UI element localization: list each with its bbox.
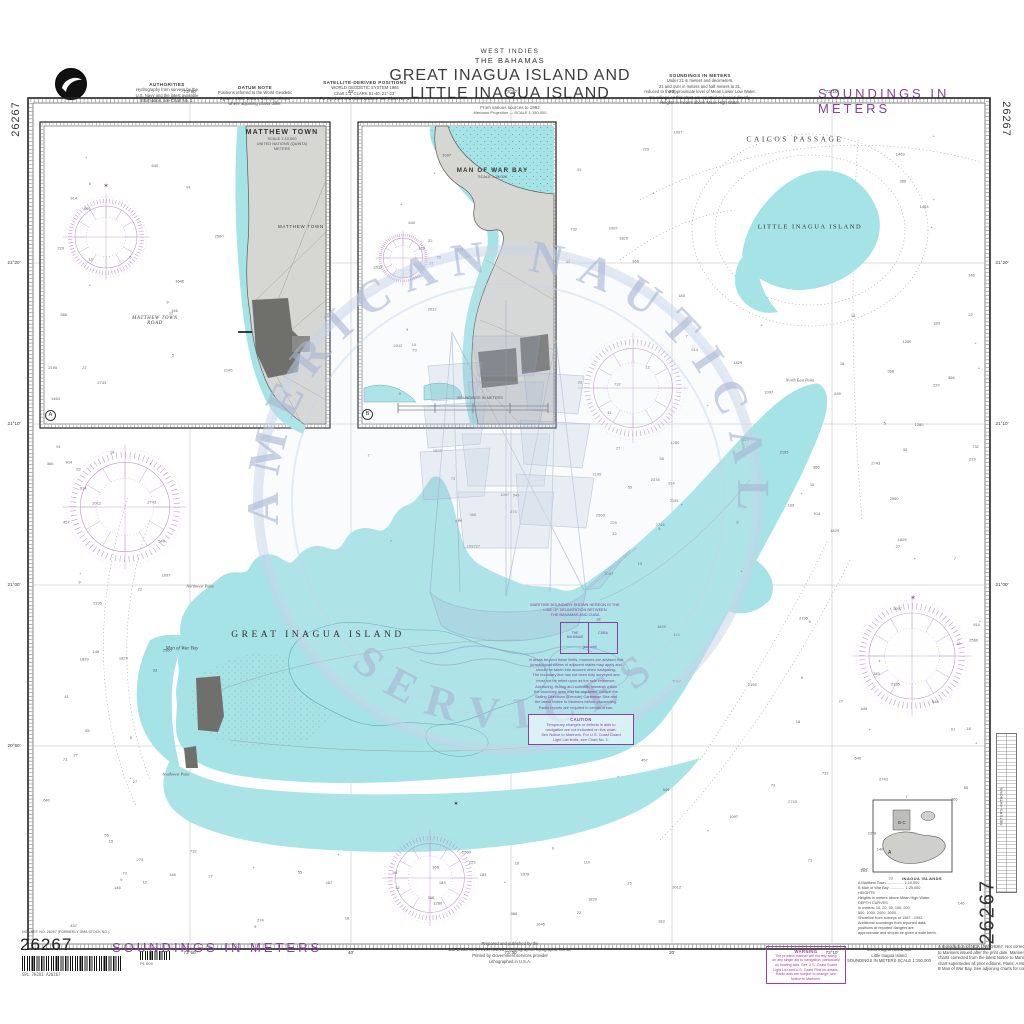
- boundary-label-left: THE BAHAMAS: [563, 631, 587, 639]
- graticule-label: 21°20': [996, 260, 1009, 265]
- sounding: +: [974, 340, 977, 345]
- sounding: 7: [905, 794, 908, 799]
- sounding: 366: [948, 375, 955, 380]
- inset-a-title-block: MATTHEW TOWN SCALE 1:10,000 UNITED NATIO…: [232, 129, 332, 151]
- sounding: 146: [877, 846, 884, 851]
- sounding: 110: [584, 859, 591, 864]
- sounding: 91: [577, 167, 582, 172]
- sounding: 15: [627, 881, 632, 886]
- sounding: 91: [951, 726, 956, 731]
- sounding: +: [652, 190, 655, 195]
- inset-b-sub1: SCALE 1:25,000: [440, 174, 545, 179]
- sounding: 146: [169, 872, 176, 877]
- sounding: 640: [43, 797, 50, 802]
- sounding: +: [975, 741, 978, 746]
- sounding: 55: [393, 870, 398, 875]
- graticule-label: 21°00': [8, 582, 21, 587]
- sounding: 1280: [903, 339, 913, 344]
- sounding: 2012: [672, 884, 682, 889]
- sounding: 732: [190, 849, 197, 854]
- sounding: 366: [432, 865, 439, 870]
- sounding: 2195: [748, 682, 758, 687]
- sounding: 183: [860, 868, 867, 873]
- boundary-note-small: (see note): [575, 645, 605, 649]
- sounding: 22: [76, 466, 81, 471]
- sounding: 2012: [92, 500, 102, 505]
- text-line: Temporary changes or defects in aids to: [532, 722, 630, 727]
- sounding: 229: [933, 382, 940, 387]
- sounding: 732: [972, 444, 979, 449]
- sounding: 274: [257, 917, 264, 922]
- sounding: 18: [840, 361, 845, 366]
- sounding: 55: [104, 832, 109, 837]
- sounding: 2195: [799, 615, 809, 620]
- graticule-label: 21°20': [8, 260, 21, 265]
- sounding: 366: [951, 797, 958, 802]
- sounding: 22: [968, 312, 973, 317]
- publisher-block: Prepared and published by theDEFENSE MAP…: [430, 941, 590, 952]
- sounding: 1097: [162, 572, 172, 577]
- sounding: 640: [854, 756, 861, 761]
- inset-a-road-label: MATTHEW TOWN ROAD: [120, 316, 190, 326]
- sounding: 1829: [80, 656, 90, 661]
- sounding: +: [931, 224, 934, 229]
- sounding: 91: [56, 444, 61, 449]
- sounding: 73: [123, 871, 128, 876]
- sounding: 33: [153, 667, 158, 672]
- sounding: 73: [63, 757, 68, 762]
- sounding: 15: [109, 839, 114, 844]
- road-label-line2: ROAD: [120, 321, 190, 326]
- sounding: 1646: [175, 278, 185, 283]
- sounding: 15: [851, 313, 856, 318]
- sounding: 229: [469, 859, 476, 864]
- sounding: +: [978, 366, 981, 371]
- sounding: 549: [84, 206, 91, 211]
- inset-a-sub3: METERS: [232, 146, 332, 151]
- sounding: 732: [822, 771, 829, 776]
- inset-a-badge: A: [45, 410, 56, 421]
- compass-rose: [63, 445, 188, 570]
- sounding: 33: [903, 447, 908, 452]
- sounding: 1829: [119, 656, 129, 661]
- sounding: 12: [143, 879, 148, 884]
- soundings-in-meters-bottom: SOUNDINGS IN METERS: [112, 940, 322, 955]
- text-line: B Man of War Bay. See adjoining charts f…: [938, 966, 1018, 972]
- sounding: +: [253, 865, 256, 870]
- sounding: 914: [70, 195, 77, 200]
- sounding: 1829: [619, 235, 629, 240]
- sounding: 549: [861, 706, 868, 711]
- conversion-table-caption: METERS–FATHOMS: [999, 772, 1004, 842]
- warning-box: WARNING The prudent mariner will not rel…: [766, 946, 846, 984]
- compass-rose: [852, 596, 972, 716]
- sounding: 183: [439, 880, 446, 885]
- sounding: 549: [158, 538, 165, 543]
- sounding: 1463: [920, 204, 930, 209]
- sounding: 27: [839, 698, 844, 703]
- sounding: 146: [114, 885, 121, 890]
- sounding: 5: [884, 421, 887, 426]
- sounding: 1097: [442, 153, 452, 158]
- graticule-label: 21°00': [996, 582, 1009, 587]
- sounding: 1097: [609, 225, 619, 230]
- sounding: 183: [933, 320, 940, 325]
- text-line: DEFENSE MAPPING AGENCY, Hydrographic/Top…: [430, 947, 590, 953]
- sounding: 27: [208, 874, 213, 879]
- sounding: +: [337, 852, 340, 857]
- sounding: 15: [810, 482, 815, 487]
- sounding: 1280: [915, 422, 925, 427]
- sounding: 2378: [868, 831, 878, 836]
- map-label: ✶: [910, 594, 916, 602]
- sounding: 2743: [788, 799, 798, 804]
- sounding: 18: [515, 860, 520, 865]
- boundary-note-heading: MARITIME BOUNDARY SHOWN HEREON IS THELIN…: [515, 602, 635, 617]
- sounding: +: [801, 491, 804, 496]
- sounding: 5: [130, 735, 133, 740]
- map-label: ✶: [103, 182, 109, 190]
- inset-b-title: MAN OF WAR BAY: [440, 167, 545, 174]
- sounding: 1280: [433, 901, 443, 906]
- sounding: 27: [133, 779, 138, 784]
- sounding: 549: [932, 699, 939, 704]
- sounding: +: [914, 556, 917, 561]
- text-line: A reproduction of NGA chart 26267. Not c…: [938, 944, 1018, 950]
- sounding: 1463: [51, 396, 61, 401]
- sounding: 2743: [871, 460, 881, 465]
- barcode-caption-2: P1 009: [140, 961, 153, 966]
- sounding: 366: [60, 312, 67, 317]
- sounding: 229: [969, 457, 976, 462]
- sounding: 732: [570, 226, 577, 231]
- sounding: 2195: [93, 601, 103, 606]
- barcode-caption: GPL 7H2O1 A26267: [22, 972, 61, 977]
- text-line: The boundary line has not been fully sur…: [515, 672, 637, 677]
- text-line: Radio reports are required in certain ar…: [515, 705, 637, 710]
- boundary-label-right: CUBA: [591, 631, 615, 635]
- sounding: 91: [186, 184, 191, 189]
- sounding: 914: [973, 622, 980, 627]
- sounding: 1097: [764, 390, 774, 395]
- svg-text:B·C: B·C: [898, 820, 907, 825]
- edition-note-block: A reproduction of NGA chart 26267. Not c…: [938, 944, 1018, 972]
- sounding: 366: [511, 911, 518, 916]
- sounding: 9: [120, 877, 123, 882]
- sounding: 229: [643, 147, 650, 152]
- sounding: 366: [428, 895, 435, 900]
- sounding: 18: [345, 915, 350, 920]
- sounding: 12: [395, 885, 400, 890]
- plans-notes: INAGUA ISLANDS A Matthew Town ..........…: [858, 876, 986, 936]
- sounding: 2560: [890, 496, 900, 501]
- text-line: on floating aids. See U.S. Coast Guard: [770, 963, 842, 968]
- sounding: 2195: [780, 449, 790, 454]
- plans-locator-box: A B·C: [873, 800, 952, 872]
- sounding: 457: [326, 880, 333, 885]
- chart-number-bottom-left: 26267: [20, 935, 72, 955]
- sounding: 2743: [97, 380, 107, 385]
- sounding: 366: [900, 179, 907, 184]
- map-label: North East Point: [786, 378, 814, 383]
- sounding: 183: [787, 503, 794, 508]
- sounding: 1097: [674, 130, 684, 135]
- sounding: +: [504, 880, 507, 885]
- text-line: approximate and should be given a wide b…: [858, 931, 986, 936]
- sounding: 18: [966, 726, 971, 731]
- sounding: 7: [954, 556, 957, 561]
- sounding: 183: [873, 671, 880, 676]
- sounding: 73: [771, 783, 776, 788]
- sounding: 183: [658, 918, 665, 923]
- sounding: 183: [480, 872, 487, 877]
- map-label: Man of War Bay: [166, 647, 199, 652]
- inset-a-town-label: MATTHEW TOWN: [278, 224, 324, 229]
- sounding: 22: [577, 910, 582, 915]
- sounding: 2560: [215, 234, 225, 239]
- graticule-label: 40': [348, 89, 354, 94]
- sounding: 274: [137, 857, 144, 862]
- graticule-label: 73°10': [826, 89, 839, 94]
- map-label: CAICOS PASSAGE: [746, 135, 843, 144]
- sounding: 2195: [48, 365, 58, 370]
- sounding: 27: [896, 544, 901, 549]
- map-label: LITTLE INAGUA ISLAND: [758, 224, 862, 231]
- map-label: GREAT INAGUA ISLAND: [231, 630, 404, 640]
- sounding: 9: [254, 924, 257, 929]
- sounding: +: [761, 322, 764, 327]
- inset-a-title: MATTHEW TOWN: [232, 129, 332, 136]
- graticule-label: 40': [348, 950, 354, 955]
- sounding: +: [933, 197, 936, 202]
- sounding: 22: [138, 586, 143, 591]
- graticule-label: 21°10': [996, 421, 1009, 426]
- graticule-label: 20': [669, 89, 675, 94]
- little-inagua-island: [735, 176, 874, 313]
- sounding: +: [129, 776, 132, 781]
- sounding: 457: [63, 520, 70, 525]
- sounding: +: [932, 134, 935, 139]
- sounding: 55: [298, 870, 303, 875]
- sounding: 2560: [969, 638, 979, 643]
- sounding: 914: [814, 511, 821, 516]
- sounding: 55: [964, 785, 969, 790]
- sounding: 55: [85, 728, 90, 733]
- sounding: 549: [663, 787, 670, 792]
- sounding: 1463: [896, 152, 906, 157]
- sounding: 1829: [588, 897, 598, 902]
- sounding: 9: [78, 580, 81, 585]
- chart-number-bottom-right: 26267: [977, 885, 1000, 945]
- sounding: 2195: [891, 681, 901, 686]
- sounding: 1829: [898, 537, 908, 542]
- sounding: 41: [64, 694, 69, 699]
- inset-b-badge: B: [362, 409, 373, 420]
- sounding: 640: [834, 391, 841, 396]
- product-title-block: Great Inagua Island andLittle Inagua Isl…: [846, 947, 932, 964]
- sounding: 1097: [729, 814, 739, 819]
- nautical-chart-sheet: AUTHORITIES Hydrography from surveys by …: [0, 0, 1024, 1024]
- sounding: 5: [809, 619, 812, 624]
- map-label: Southwest Point: [162, 772, 189, 777]
- sounding: 27: [73, 752, 78, 757]
- sounding: 640: [152, 163, 159, 168]
- sounding: 229: [57, 246, 64, 251]
- sounding: 2378: [521, 872, 531, 877]
- text-line: Lithographed in U.S.A.: [450, 959, 570, 965]
- sounding: 18: [110, 449, 115, 454]
- sounding: +: [869, 727, 872, 732]
- text-line: THE BAHAMAS AND CUBA: [515, 612, 635, 617]
- sounding: 914: [80, 485, 87, 490]
- sounding: 1646: [536, 921, 546, 926]
- sounding: 914: [66, 459, 73, 464]
- sounding: +: [79, 571, 82, 576]
- text-line: charts corrected from the latest Notice …: [938, 955, 1018, 961]
- matthew-town-area: [196, 676, 224, 732]
- sounding: 27: [82, 365, 87, 370]
- sounding: 366: [813, 465, 820, 470]
- sounding: 12: [88, 257, 93, 262]
- sounding: 18: [956, 641, 961, 646]
- graticule-label: 20': [669, 950, 675, 955]
- text-line: must not be relied upon as the sole refe…: [515, 678, 637, 683]
- sounding: 1097: [893, 606, 903, 611]
- map-label: Northwest Point: [186, 584, 213, 589]
- sounding: 146: [93, 649, 100, 654]
- sounding: 73: [808, 858, 813, 863]
- text-line: Light List limits, see Chart No. 1.: [532, 737, 630, 742]
- printer-block: Printed by Government services providerL…: [450, 953, 570, 964]
- sounding: 366: [887, 368, 894, 373]
- sounding: 2743: [147, 500, 157, 505]
- sounding: 146: [968, 272, 975, 277]
- sounding: 7: [878, 659, 881, 664]
- boundary-paragraph-2: Anchoring, fishing and scientific resear…: [515, 684, 637, 710]
- text-line: SOUNDINGS IN METERS SCALE 1:150,000: [846, 958, 932, 964]
- sounding: 146: [171, 308, 178, 313]
- graticule-label: 73°50': [184, 89, 197, 94]
- sounding: 2743: [879, 776, 889, 781]
- graticule-label: 20°50': [8, 743, 21, 748]
- sounding: 457: [641, 758, 648, 763]
- sounding: 2560: [462, 849, 472, 854]
- chart-canvas: A B·C 18294133225+221855366272749+256091…: [0, 0, 1024, 1024]
- boundary-diagram: THE BAHAMAS CUBA (see note): [560, 622, 618, 654]
- sounding: 2195: [224, 368, 234, 373]
- boundary-paragraph-1: In areas beyond these limits, mariners a…: [515, 657, 637, 683]
- barcode-main: [22, 956, 122, 971]
- map-label: ✶: [453, 801, 458, 808]
- sounding: 1829: [830, 528, 840, 533]
- sounding: 640: [408, 220, 415, 225]
- sounding: 9: [552, 846, 555, 851]
- text-line: Notice to Mariners.: [770, 977, 842, 982]
- sounding: 18: [796, 719, 801, 724]
- graticule-label: 73°30': [505, 89, 518, 94]
- sounding: 5: [801, 675, 804, 680]
- sounding: 366: [47, 461, 54, 466]
- inset-b-title-block: MAN OF WAR BAY SCALE 1:25,000: [440, 167, 545, 179]
- sounding: +: [707, 828, 710, 833]
- caution-box: CAUTION Temporary changes or defects in …: [528, 714, 634, 745]
- stock-number-line: NGA REF. NO. 26267 (FORMERLY DMA STOCK N…: [22, 930, 109, 934]
- sounding: 457: [70, 923, 77, 928]
- inset-b-scale-caption: SOUNDINGS IN METERS: [420, 395, 540, 400]
- graticule-label: 21°10': [8, 421, 21, 426]
